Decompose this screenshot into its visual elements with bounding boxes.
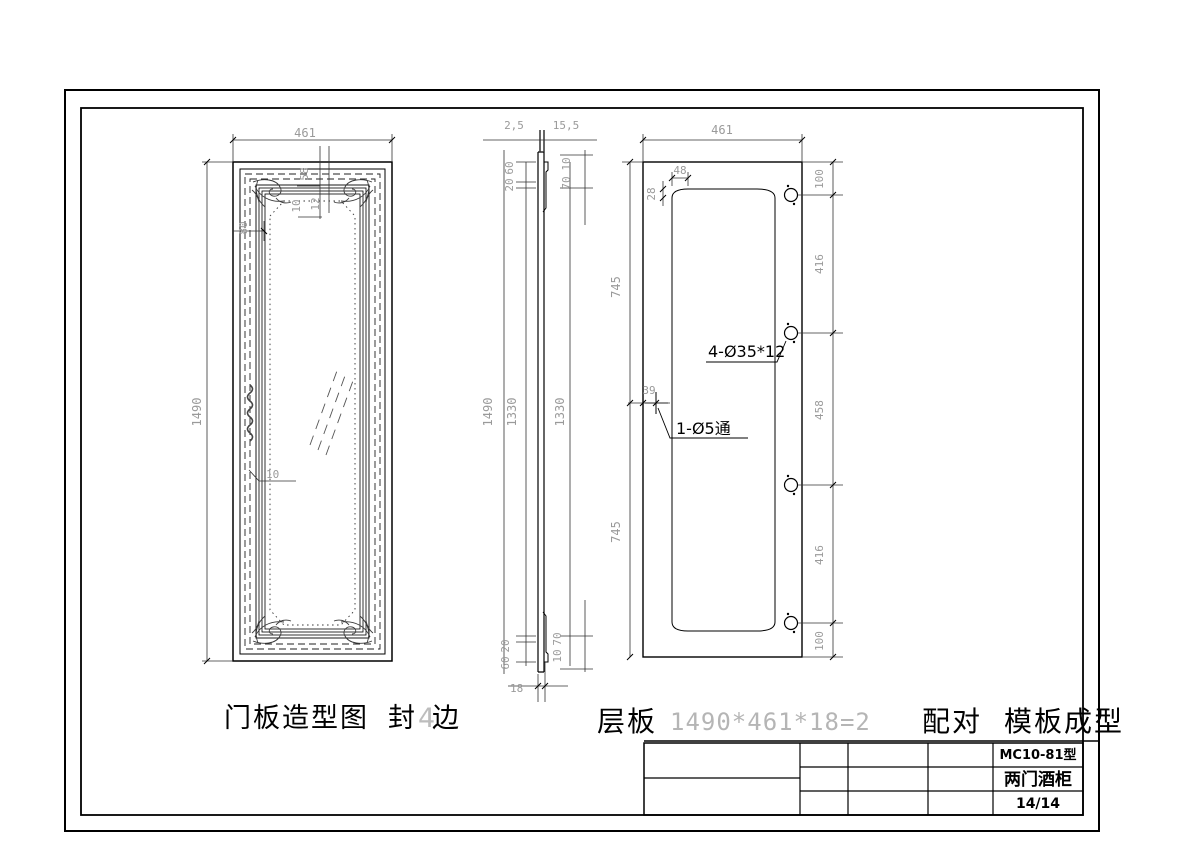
dim-drill-28: 28 — [645, 187, 658, 200]
dim-front-mid-10: 10 — [266, 468, 279, 481]
dim-front-10: 10 — [290, 199, 303, 212]
title-block-page: 14/14 — [1016, 796, 1060, 812]
dim-side-60-bottom: 60 — [499, 656, 512, 669]
footer-pairing: 配对 — [922, 705, 982, 738]
drill-view-dim-text: 461 48 28 745 745 39 100 416 458 416 100… — [609, 123, 826, 651]
cad-canvas: 461 1490 80 58 10 12 10 门板造型图 封 4 边 2,5 … — [0, 0, 1191, 842]
dim-side-60-top: 60 — [503, 161, 516, 174]
drill-view-dimensions — [622, 134, 843, 660]
dim-side-1330-left: 1330 — [505, 398, 519, 427]
footer-size-formula: 1490*461*18=2 — [670, 708, 871, 736]
hinge-holes — [785, 189, 798, 630]
dim-side-70-bottom: 70 — [551, 632, 564, 645]
dim-front-58: 58 — [298, 167, 311, 180]
title-block: MC10-81型 两门酒柜 14/14 — [644, 743, 1083, 815]
dim-side-10-top: 10 — [560, 157, 573, 170]
dim-front-height: 1490 — [190, 398, 204, 427]
dim-drill-39: 39 — [642, 384, 655, 397]
dim-side-1490: 1490 — [481, 398, 495, 427]
dim-chain-416-bottom: 416 — [813, 545, 826, 565]
footer-row: 层板 1490*461*18=2 配对 模板成型 — [597, 705, 1124, 741]
footer-molding: 模板成型 — [1004, 705, 1124, 738]
dim-chain-100-bottom: 100 — [813, 631, 826, 651]
dim-front-12: 12 — [309, 197, 322, 210]
side-view-dimensions — [483, 130, 597, 702]
hole-center-marks — [787, 185, 795, 633]
drill-view-linework — [643, 162, 802, 657]
dim-chain-416-top: 416 — [813, 254, 826, 274]
dim-side-20-top: 20 — [503, 178, 516, 191]
dim-chain-458: 458 — [813, 400, 826, 420]
title-block-product: 两门酒柜 — [1004, 769, 1072, 790]
dim-drill-48: 48 — [673, 164, 686, 177]
front-title-text: 门板造型图 — [224, 703, 369, 734]
dim-side-1330-right: 1330 — [553, 398, 567, 427]
dim-front-80: 80 — [237, 221, 250, 234]
dim-side-18: 18 — [510, 682, 523, 695]
dim-drill-745-top: 745 — [609, 276, 623, 298]
dim-drill-745-bottom: 745 — [609, 521, 623, 543]
dim-front-width: 461 — [294, 126, 316, 140]
title-block-model: MC10-81型 — [999, 747, 1076, 763]
front-title-seal: 封 — [388, 703, 417, 734]
label-hinge-holes: 4-Ø35*12 — [708, 342, 785, 361]
front-title-edge: 边 — [432, 703, 461, 734]
dim-side-20-bottom: 20 — [499, 639, 512, 652]
footer-part-name: 层板 — [597, 705, 657, 738]
dim-side-15-5: 15,5 — [553, 119, 580, 132]
side-view-dim-text: 2,5 15,5 60 20 10 70 1490 1330 1330 20 6… — [481, 119, 579, 695]
dim-drill-width: 461 — [711, 123, 733, 137]
dim-side-2-5: 2,5 — [504, 119, 524, 132]
front-view-title: 门板造型图 封 4 边 — [224, 703, 461, 734]
front-view-linework — [233, 162, 392, 661]
side-view-linework — [538, 152, 548, 672]
cad-drawing-page: 461 1490 80 58 10 12 10 门板造型图 封 4 边 2,5 … — [0, 0, 1191, 842]
dim-side-70-top: 70 — [560, 176, 573, 189]
dim-chain-100-top: 100 — [813, 169, 826, 189]
label-through-hole: 1-Ø5通 — [676, 419, 731, 438]
dim-side-10-bottom: 10 — [551, 649, 564, 662]
